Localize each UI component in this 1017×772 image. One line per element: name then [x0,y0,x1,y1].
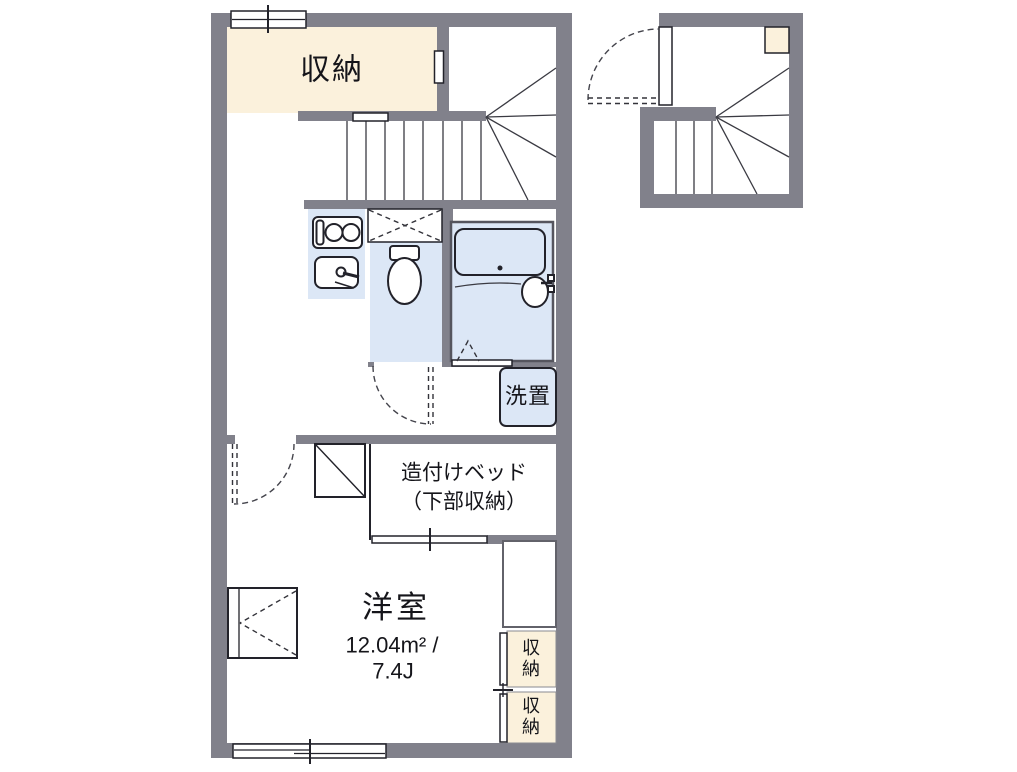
block-wall-mid [640,107,716,121]
room-area-label: 12.04m² / [346,632,439,661]
bathroom [451,222,554,366]
side-white-box [503,541,556,627]
entrance-door [659,27,672,105]
storage-bottom-door [353,113,388,121]
shoe-cabinet [765,27,789,53]
overhead-cabinet [368,209,442,242]
basin-fitting-top [548,275,554,281]
block-wall-bottom [640,194,803,208]
built-in-bed-label: 造付けベッド （下部収納） [401,459,527,518]
block-wall-right [789,13,803,208]
floor-plan: 収納 洗置 造付けベッド （下部収納） 洋室 12.04m² / 7.4J 収納… [0,0,1017,772]
kitchen-sink [315,257,359,288]
wall-right [556,13,572,758]
bed-label-line1: 造付けベッド [401,462,527,485]
toilet [388,246,421,304]
closet-upper-label: 収納 [520,638,542,680]
folding-closet-box [228,588,297,658]
staircase-entrance [676,68,789,194]
wall-storage-bottom [298,111,486,121]
wash-basin [522,277,548,307]
wall-kitchen-top [304,200,556,209]
bath-threshold [452,360,512,366]
wall-left [211,13,227,758]
laundry-label: 洗置 [505,383,551,412]
block-wall-left [640,107,654,208]
storage-label: 収納 [300,51,364,90]
wall-mid-left [227,435,235,444]
bed-label-line2: （下部収納） [401,491,527,514]
counter-box [315,444,365,497]
toilet-door [373,366,433,424]
closet-lower-door [500,694,507,742]
bedroom-door [233,444,295,504]
bathtub-drain [498,266,503,271]
room-name-label: 洋室 [362,588,430,628]
basin-fitting-bottom [548,286,554,292]
block-wall-top [659,13,803,27]
closet-upper-door [500,633,507,685]
room-size-label: 7.4J [372,658,414,687]
bottom-window [233,739,386,764]
closet-lower-label: 収納 [520,696,542,738]
stove [313,217,362,248]
wall-mid-right [296,435,556,444]
entrance-door-swing [588,29,659,100]
entrance-stair-block [588,13,803,208]
storage-side-door [435,51,444,83]
